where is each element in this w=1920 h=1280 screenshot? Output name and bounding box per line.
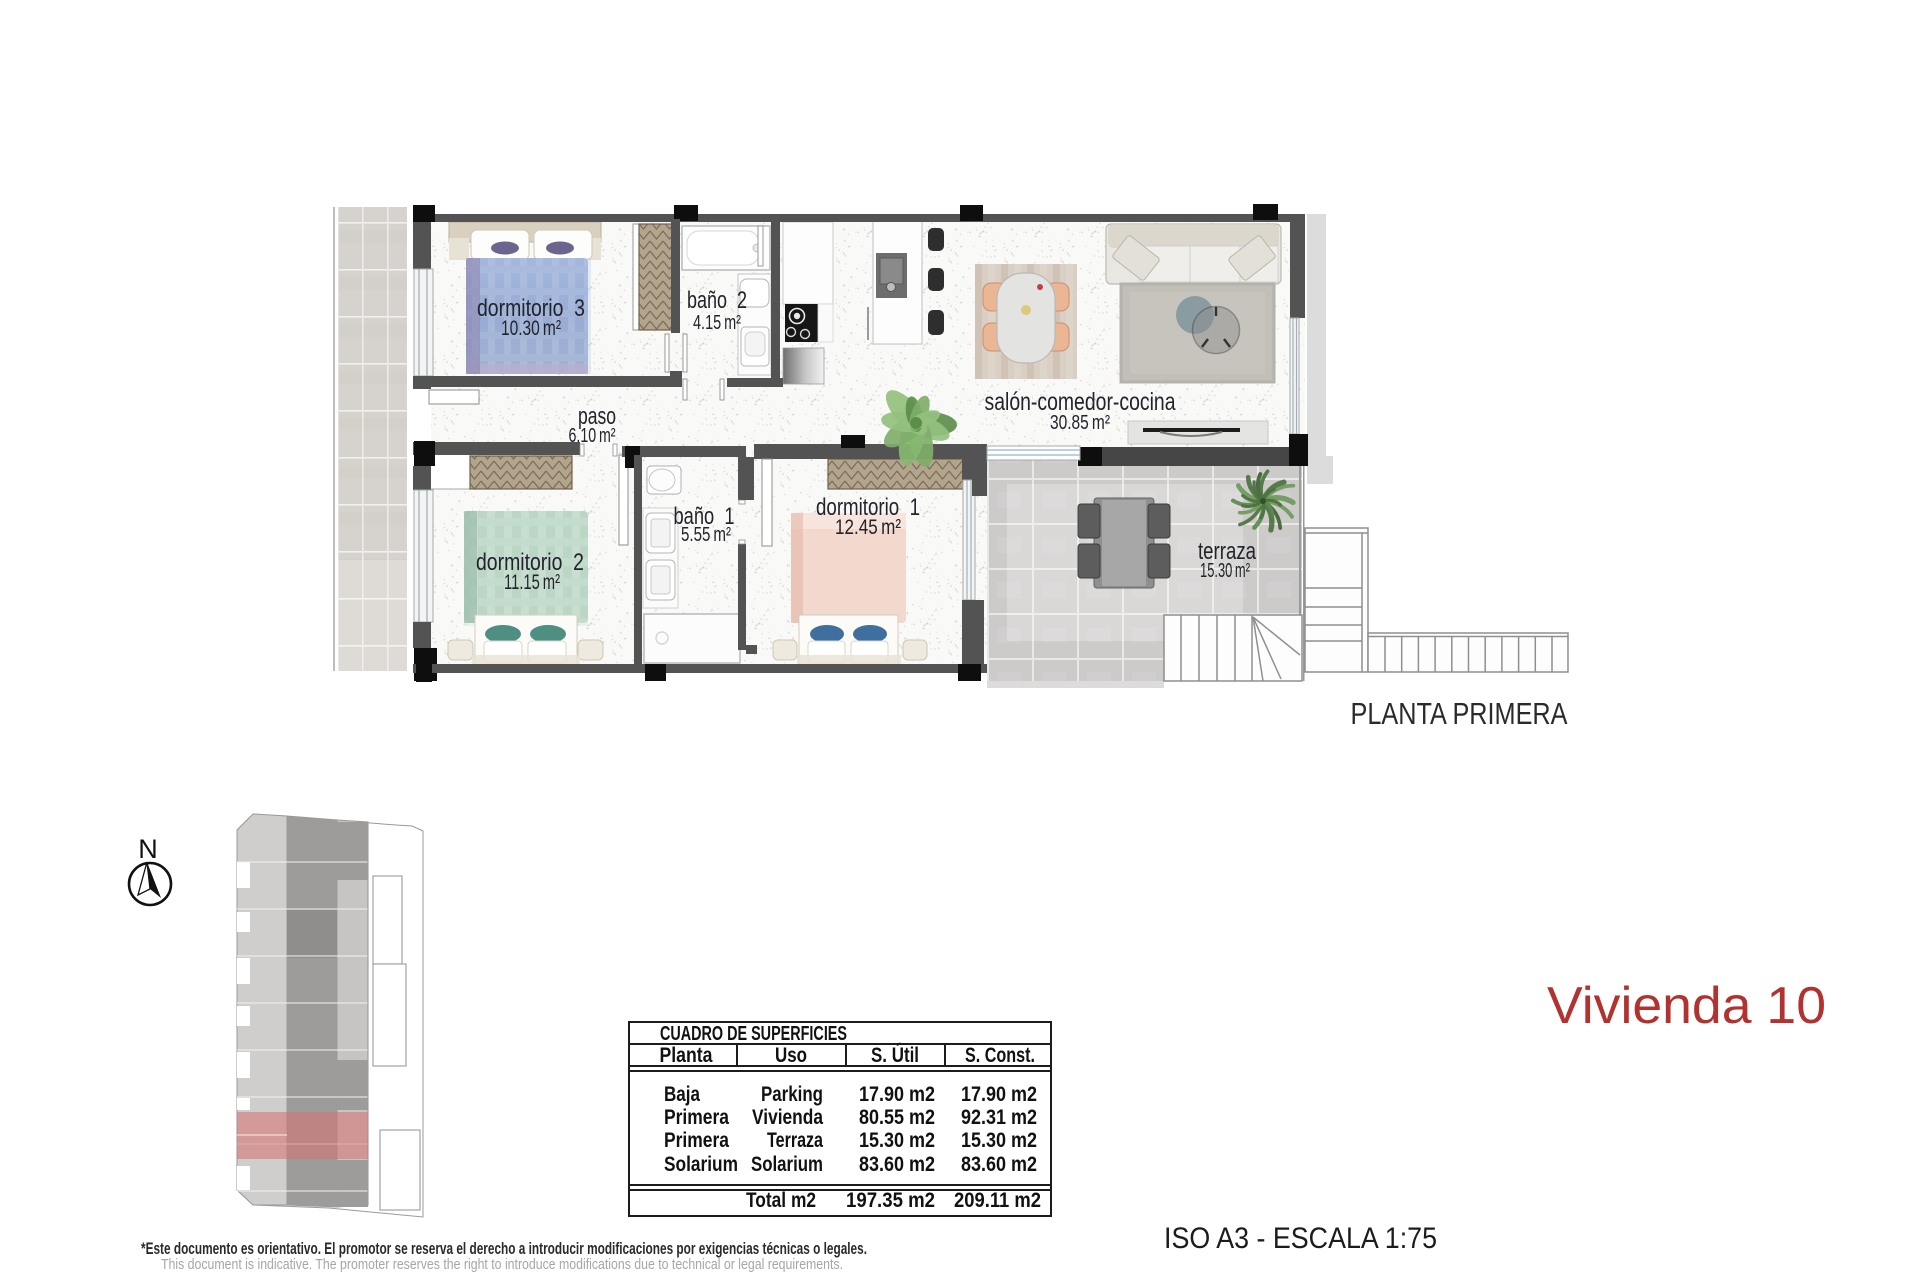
svg-text:baño 2: baño 2	[687, 287, 747, 314]
svg-text:Solarium: Solarium	[664, 1153, 738, 1176]
svg-text:15.30 m2: 15.30 m2	[961, 1129, 1037, 1152]
svg-text:Terraza: Terraza	[767, 1129, 823, 1152]
svg-text:Planta: Planta	[660, 1044, 713, 1067]
svg-text:S. Útil: S. Útil	[871, 1043, 919, 1067]
svg-text:11.15 m²: 11.15 m²	[504, 571, 560, 594]
svg-text:17.90 m2: 17.90 m2	[961, 1083, 1037, 1106]
svg-text:30.85 m²: 30.85 m²	[1050, 412, 1110, 434]
svg-text:Primera: Primera	[664, 1106, 729, 1129]
svg-text:ISO A3 - ESCALA 1:75: ISO A3 - ESCALA 1:75	[1164, 1222, 1437, 1255]
svg-text:92.31 m2: 92.31 m2	[961, 1106, 1037, 1129]
svg-text:S. Const.: S. Const.	[965, 1044, 1035, 1067]
svg-text:CUADRO DE SUPERFICIES: CUADRO DE SUPERFICIES	[660, 1023, 847, 1045]
svg-text:Vivienda 10: Vivienda 10	[1547, 977, 1826, 1035]
svg-text:15.30 m²: 15.30 m²	[1200, 560, 1250, 582]
svg-text:17.90 m2: 17.90 m2	[859, 1083, 935, 1106]
svg-text:12.45 m²: 12.45 m²	[835, 516, 901, 539]
svg-text:This document is indicative. T: This document is indicative. The promote…	[161, 1256, 843, 1273]
svg-text:209.11 m2: 209.11 m2	[954, 1189, 1041, 1212]
svg-text:Primera: Primera	[664, 1129, 729, 1152]
svg-text:5.55 m²: 5.55 m²	[681, 524, 731, 546]
svg-text:197.35 m2: 197.35 m2	[846, 1189, 935, 1212]
svg-text:4.15 m²: 4.15 m²	[693, 312, 741, 334]
svg-text:N: N	[138, 834, 158, 864]
svg-text:6.10 m²: 6.10 m²	[569, 425, 616, 447]
svg-text:10.30 m²: 10.30 m²	[501, 317, 561, 340]
svg-text:Parking: Parking	[761, 1083, 823, 1106]
svg-text:83.60 m2: 83.60 m2	[961, 1153, 1037, 1176]
svg-text:Vivienda: Vivienda	[752, 1106, 823, 1129]
svg-text:80.55 m2: 80.55 m2	[859, 1106, 935, 1129]
svg-text:83.60 m2: 83.60 m2	[859, 1153, 935, 1176]
svg-text:Baja: Baja	[664, 1083, 700, 1106]
svg-text:Solarium: Solarium	[751, 1153, 823, 1176]
svg-text:Total m2: Total m2	[746, 1189, 816, 1212]
svg-text:15.30 m2: 15.30 m2	[859, 1129, 935, 1152]
svg-text:PLANTA PRIMERA: PLANTA PRIMERA	[1351, 696, 1568, 731]
svg-text:Uso: Uso	[775, 1044, 807, 1067]
